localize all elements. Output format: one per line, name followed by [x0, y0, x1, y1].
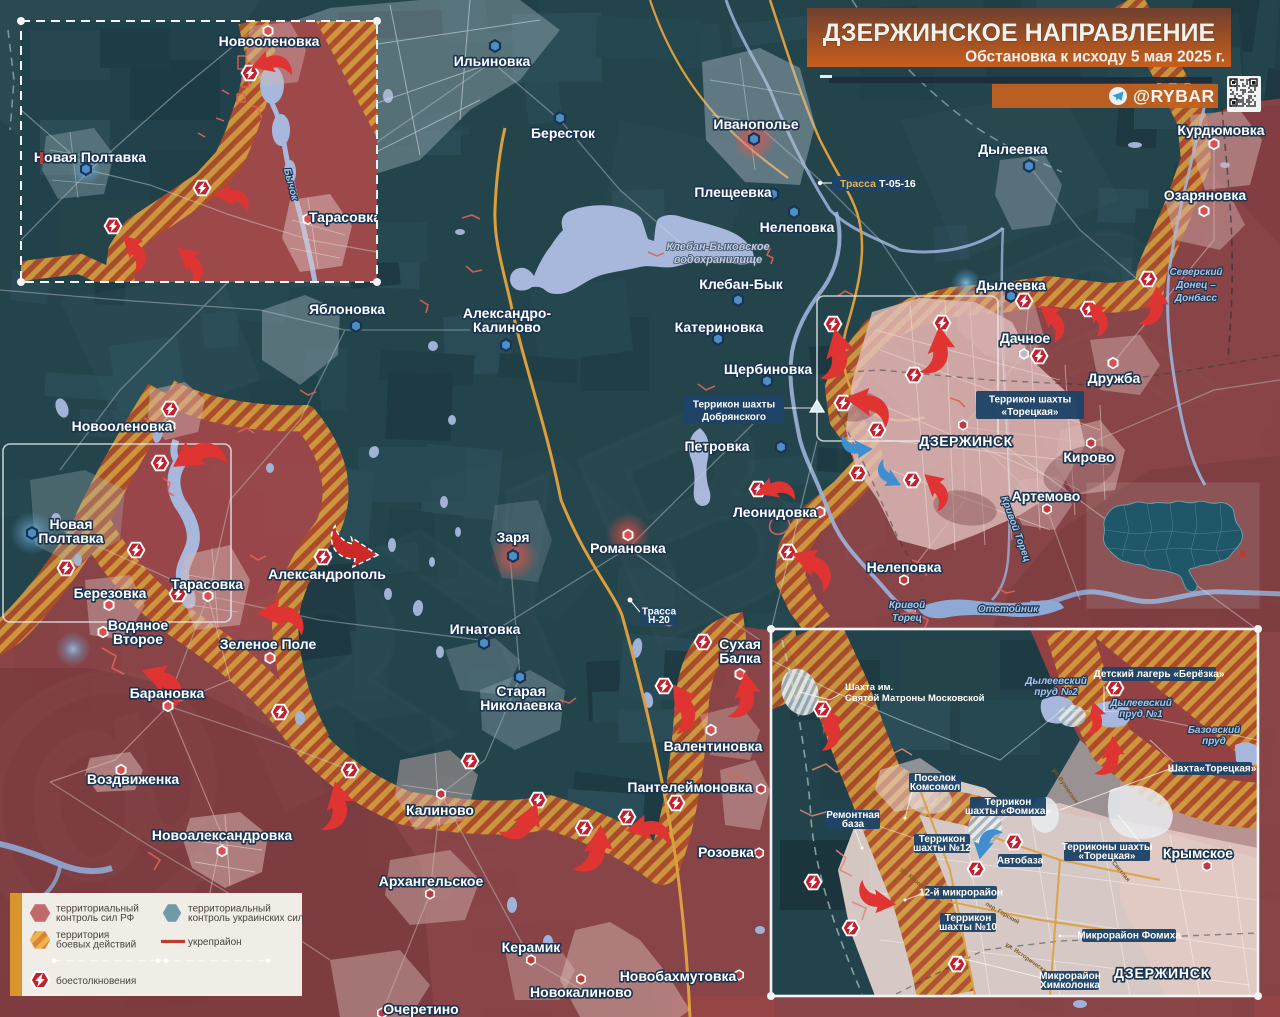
svg-text:Балка: Балка [719, 650, 761, 666]
svg-text:Дружба: Дружба [1088, 370, 1141, 386]
svg-text:контроль украинских сил: контроль украинских сил [188, 913, 304, 924]
svg-text:Игнатовка: Игнатовка [450, 621, 521, 637]
svg-text:Крымское: Крымское [1163, 845, 1233, 861]
svg-text:Химколонка: Химколонка [1040, 980, 1100, 991]
svg-text:Озаряновка: Озаряновка [1164, 187, 1247, 203]
svg-text:укрепрайон: укрепрайон [188, 937, 242, 948]
svg-text:Кривой: Кривой [889, 600, 925, 611]
svg-text:«Торецкая»: «Торецкая» [1002, 407, 1059, 418]
svg-text:Новооленовка: Новооленовка [72, 418, 173, 434]
svg-text:Н-20: Н-20 [648, 615, 670, 626]
svg-text:Артемово: Артемово [1012, 488, 1081, 504]
svg-text:Леонидовка: Леонидовка [733, 504, 817, 520]
svg-text:Террикон шахты: Террикон шахты [693, 400, 775, 411]
svg-text:Клебан-Бык: Клебан-Бык [699, 276, 783, 292]
svg-text:Базовский: Базовский [1188, 725, 1240, 736]
svg-text:Комсомол: Комсомол [910, 782, 960, 793]
svg-text:Бересток: Бересток [531, 125, 596, 141]
svg-text:Архангельское: Архангельское [379, 873, 484, 889]
svg-text:Розовка: Розовка [698, 844, 754, 860]
svg-text:шахты №12: шахты №12 [913, 843, 971, 854]
svg-text:Кирово: Кирово [1063, 449, 1114, 465]
svg-text:Новооленовка: Новооленовка [219, 33, 320, 49]
svg-text:Петровка: Петровка [684, 438, 749, 454]
svg-text:пруд №1: пруд №1 [1119, 709, 1163, 720]
svg-text:Керамик: Керамик [502, 939, 562, 955]
svg-text:шахты №10: шахты №10 [939, 922, 997, 933]
svg-text:Плещеевка: Плещеевка [694, 184, 772, 200]
svg-text:Березовка: Березовка [74, 585, 147, 601]
svg-text:Ильиновка: Ильиновка [454, 53, 531, 69]
svg-text:Новобахмутовка: Новобахмутовка [620, 968, 737, 984]
svg-text:Новая Полтавка: Новая Полтавка [34, 149, 146, 165]
svg-text:Щербиновка: Щербиновка [724, 361, 812, 377]
svg-text:Микрорайон Фомиха: Микрорайон Фомиха [1077, 931, 1181, 942]
svg-text:Новокалиново: Новокалиново [530, 984, 632, 1000]
svg-text:Второе: Второе [113, 631, 163, 647]
svg-text:Новоалександровка: Новоалександровка [152, 827, 293, 843]
svg-text:пруд: пруд [1202, 736, 1226, 747]
svg-text:Воздвиженка: Воздвиженка [87, 771, 180, 787]
svg-text:боестолкновения: боестолкновения [56, 975, 136, 987]
svg-text:Романовка: Романовка [590, 540, 666, 556]
svg-text:шахты «Фомиха»: шахты «Фомиха» [965, 806, 1051, 817]
svg-text:Автобаза: Автобаза [997, 855, 1044, 867]
svg-text:Нелеповка: Нелеповка [760, 219, 835, 235]
svg-text:Северский: Северский [1169, 267, 1222, 278]
svg-text:Тарасовка: Тарасовка [309, 209, 381, 225]
svg-text:Террикон шахты: Террикон шахты [989, 395, 1071, 406]
svg-text:@RYBAR: @RYBAR [1133, 86, 1215, 106]
svg-text:Иванополье: Иванополье [713, 116, 798, 132]
svg-text:Александрополь: Александрополь [268, 566, 386, 582]
svg-text:Донец –: Донец – [1175, 280, 1216, 291]
svg-text:Шахта«Торецкая»: Шахта«Торецкая» [1168, 764, 1257, 775]
svg-text:Торец: Торец [892, 613, 922, 624]
svg-text:Т-05-16: Т-05-16 [879, 178, 916, 190]
svg-text:Дылеевка: Дылеевка [976, 277, 1046, 293]
svg-text:боевых действий: боевых действий [56, 939, 136, 951]
svg-text:Дылеевка: Дылеевка [978, 141, 1048, 157]
svg-text:Калиново: Калиново [406, 802, 474, 818]
svg-text:Донбасс: Донбасс [1174, 292, 1218, 304]
svg-text:пруд №2: пруд №2 [1034, 687, 1078, 698]
svg-text:Обстановка к исходу 5 мая 2025: Обстановка к исходу 5 мая 2025 г. [965, 49, 1225, 66]
svg-text:Зеленое Поле: Зеленое Поле [220, 636, 317, 652]
svg-text:Клебан-Быковское: Клебан-Быковское [666, 241, 769, 253]
svg-text:12-й микрорайон: 12-й микрорайон [919, 888, 1003, 899]
svg-text:Катериновка: Катериновка [675, 319, 764, 335]
svg-text:Святой Матроны Московской: Святой Матроны Московской [845, 693, 985, 704]
svg-text:Калиново: Калиново [473, 319, 541, 335]
svg-text:Яблоновка: Яблоновка [309, 301, 385, 317]
svg-text:Трасса: Трасса [840, 178, 876, 190]
svg-text:Барановка: Барановка [130, 685, 205, 701]
svg-text:Валентиновка: Валентиновка [664, 738, 763, 754]
svg-text:Дылеевский: Дылеевский [1109, 698, 1172, 709]
svg-text:Отстойник: Отстойник [978, 604, 1039, 615]
svg-text:Очеретино: Очеретино [383, 1001, 458, 1017]
svg-text:Пантелеймоновка: Пантелеймоновка [627, 779, 752, 795]
svg-text:Курдюмовка: Курдюмовка [1177, 122, 1264, 138]
svg-text:Тарасовка: Тарасовка [171, 576, 243, 592]
svg-text:водохранилище: водохранилище [674, 254, 762, 266]
svg-text:контроль сил РФ: контроль сил РФ [56, 913, 135, 924]
svg-text:Дачное: Дачное [1000, 330, 1051, 346]
svg-text:Полтавка: Полтавка [38, 530, 103, 546]
svg-text:база: база [842, 818, 865, 830]
svg-text:Шахта им.: Шахта им. [845, 682, 893, 693]
svg-text:Заря: Заря [496, 529, 529, 545]
svg-text:Нелеповка: Нелеповка [867, 559, 942, 575]
svg-text:Николаевка: Николаевка [480, 697, 562, 713]
svg-text:ДЗЕРЖИНСК: ДЗЕРЖИНСК [1114, 965, 1210, 981]
svg-text:Детский лагерь «Берёзка»: Детский лагерь «Берёзка» [1094, 669, 1225, 680]
svg-text:ДЗЕРЖИНСКОЕ НАПРАВЛЕНИЕ: ДЗЕРЖИНСКОЕ НАПРАВЛЕНИЕ [823, 19, 1215, 47]
svg-text:Добрянского: Добрянского [702, 411, 766, 423]
svg-text:Дылеевский: Дылеевский [1024, 676, 1087, 687]
svg-text:«Торецкая»: «Торецкая» [1079, 851, 1136, 862]
svg-text:ДЗЕРЖИНСК: ДЗЕРЖИНСК [919, 433, 1012, 449]
